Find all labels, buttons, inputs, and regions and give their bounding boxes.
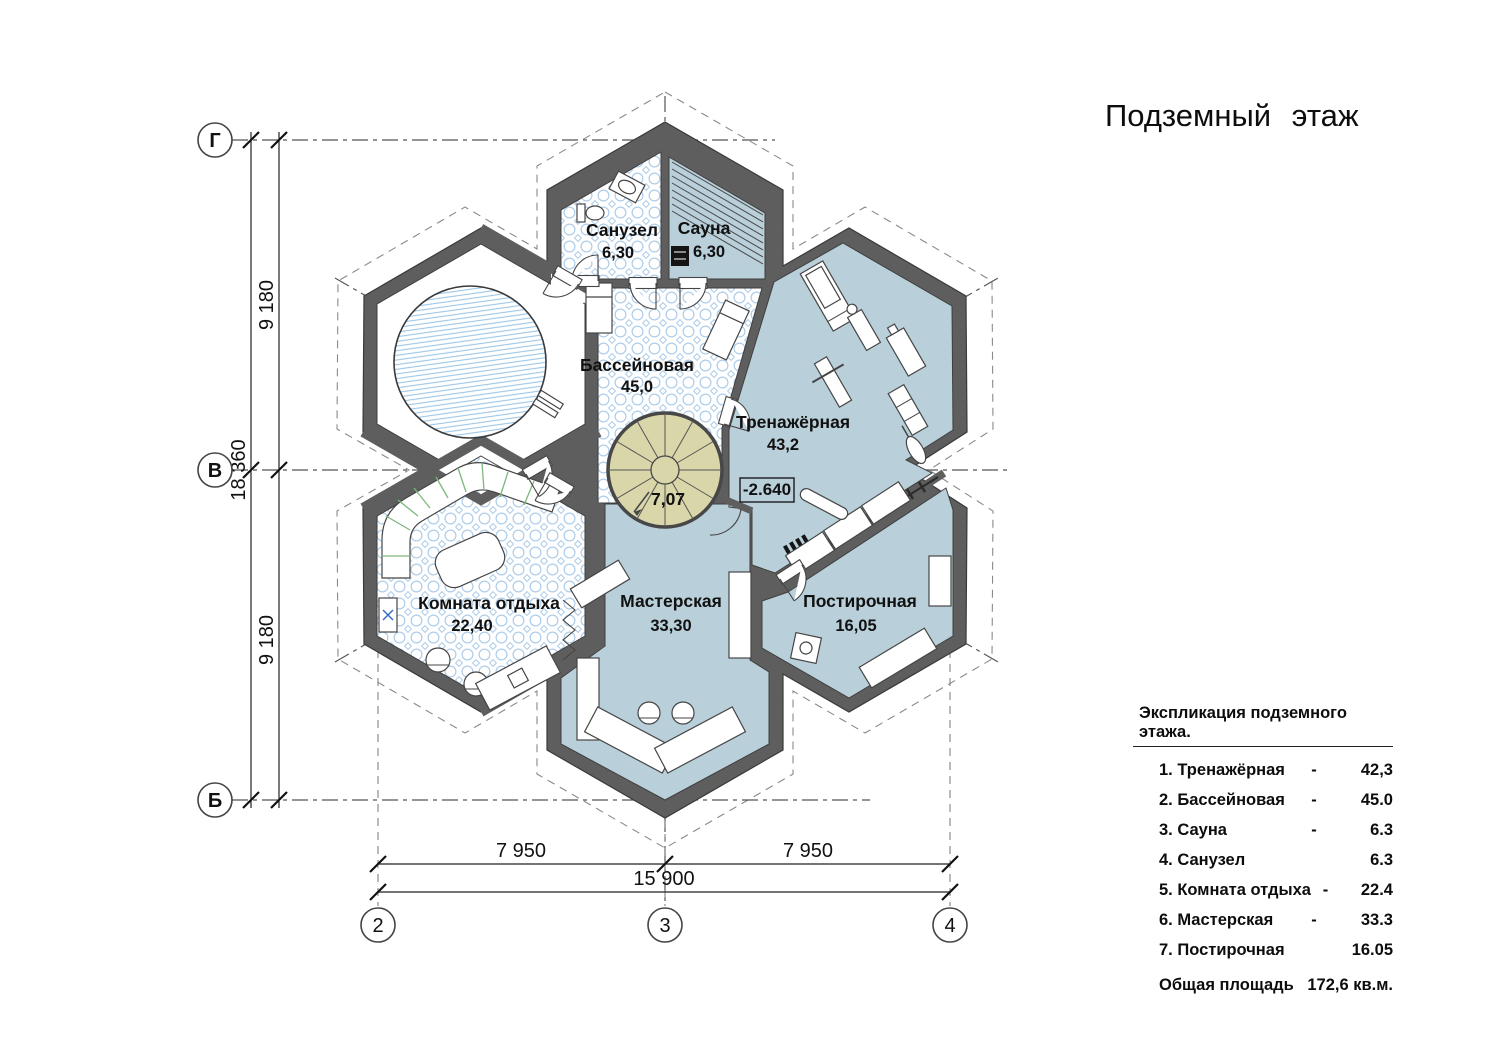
elevation-value: -2.640 [743, 480, 791, 499]
chair [426, 648, 450, 672]
dim-left-segment-1: 9 180 [256, 280, 278, 330]
legend-table: Экспликация подземного этажа. 1. Тренажё… [1133, 704, 1393, 995]
tv-unit [379, 598, 397, 632]
room-label-sanuzel: Санузел [586, 220, 658, 240]
legend-row: 3. Сауна-6.3 [1133, 821, 1393, 840]
dim-bottom-total: 15 900 [633, 868, 694, 890]
axis-label-2: 2 [372, 915, 383, 937]
spiral-stair [608, 413, 722, 527]
laundry-counter [929, 556, 951, 606]
stool [672, 702, 694, 724]
room-area-lounge: 22,40 [451, 617, 492, 635]
dim-bottom-segment-1: 7 950 [496, 840, 546, 862]
legend-row: 4. Санузел6.3 [1133, 851, 1393, 870]
room-label-postirochnaya: Постирочная [803, 591, 917, 611]
page-title: Подземный этаж [1105, 98, 1359, 134]
elevation-mark: -2.640 [740, 478, 794, 502]
lounger [586, 283, 612, 333]
legend-row: 1. Тренажёрная-42,3 [1133, 761, 1393, 780]
room-label-lounge: Комната отдыха [418, 593, 560, 613]
legend-row: 2. Бассейновая-45.0 [1133, 791, 1393, 810]
axis-label-g: Г [209, 130, 220, 152]
building-footprint [363, 122, 967, 818]
axis-label-b: Б [208, 790, 222, 812]
axis-label-v: В [208, 460, 222, 482]
legend-row: 7. Постирочная16.05 [1133, 941, 1393, 960]
room-area-trenazhernaya: 43,2 [767, 436, 799, 454]
workbench [729, 572, 751, 658]
dim-left-segment-2: 9 180 [256, 615, 278, 665]
room-area-masterskaya: 33,30 [650, 617, 691, 635]
axis-label-4: 4 [944, 915, 955, 937]
dim-bottom-segment-2: 7 950 [783, 840, 833, 862]
sauna-stove [671, 246, 689, 266]
legend-row: 5. Комната отдыха-22.4 [1133, 881, 1393, 900]
room-label-sauna: Сауна [678, 218, 731, 238]
legend-header: Экспликация подземного этажа. [1133, 704, 1393, 747]
legend-row: 6. Мастерская-33.3 [1133, 911, 1393, 930]
room-area-postirochnaya: 16,05 [835, 617, 876, 635]
room-area-sauna: 6,30 [693, 243, 725, 261]
stool [638, 702, 660, 724]
stair-area-label: 7,07 [651, 489, 685, 509]
room-label-masterskaya: Мастерская [620, 591, 722, 611]
pool [394, 286, 546, 438]
legend-total: Общая площадь172,6 кв.м. [1133, 976, 1393, 995]
axis-label-3: 3 [659, 915, 670, 937]
room-label-basseynovaya: Бассейновая [580, 355, 694, 375]
room-area-sanuzel: 6,30 [602, 244, 634, 262]
room-area-basseynovaya: 45,0 [621, 378, 653, 396]
washing-machine [791, 633, 822, 664]
room-label-trenazhernaya: Тренажёрная [736, 412, 850, 432]
